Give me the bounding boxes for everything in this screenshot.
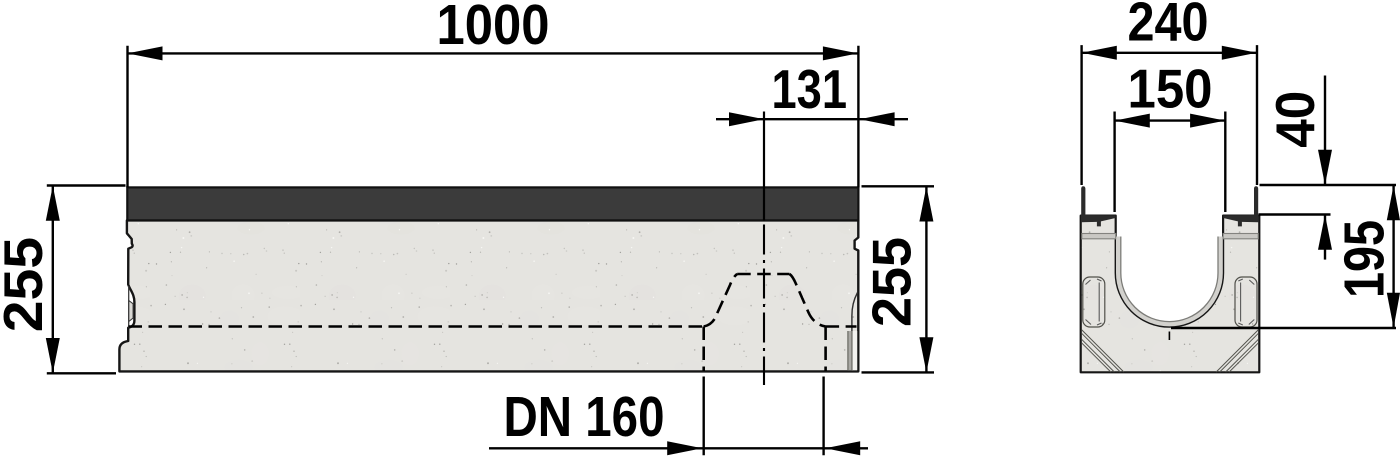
svg-text:255: 255 <box>0 237 54 332</box>
svg-text:150: 150 <box>1128 58 1213 120</box>
svg-text:40: 40 <box>1264 91 1326 148</box>
svg-text:240: 240 <box>1128 0 1209 53</box>
svg-text:1000: 1000 <box>437 0 550 57</box>
svg-text:195: 195 <box>1333 220 1397 298</box>
svg-text:DN 160: DN 160 <box>504 385 665 449</box>
svg-text:255: 255 <box>861 237 923 327</box>
svg-text:131: 131 <box>772 58 848 120</box>
